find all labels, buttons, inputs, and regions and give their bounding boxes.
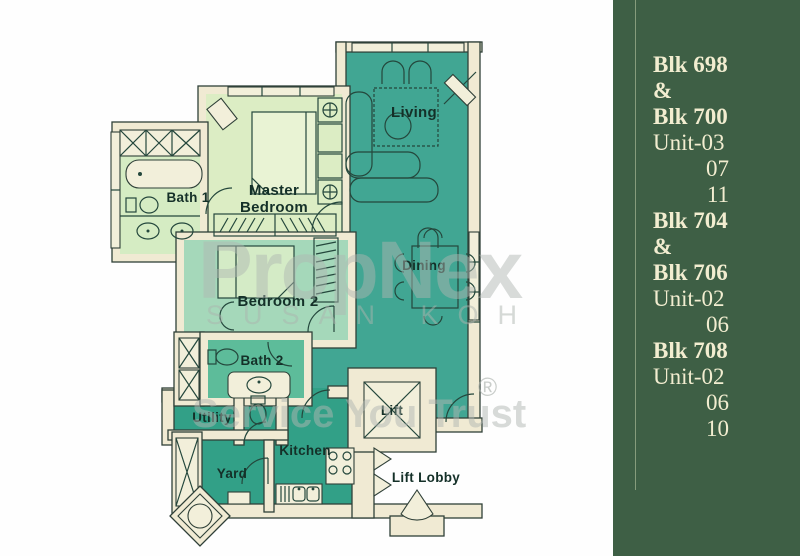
block-unit-list: Blk 698 & Blk 700 Unit-03 07 11 Blk 704 … bbox=[653, 52, 729, 442]
panel-line: 11 bbox=[653, 182, 729, 208]
panel-line: 07 bbox=[653, 156, 729, 182]
room-label-bath1: Bath 1 bbox=[166, 190, 209, 205]
scanned-floorplan-page: Living Master Bedroom Bath 1 Dining Bedr… bbox=[0, 0, 800, 556]
panel-line: Unit-02 bbox=[653, 286, 729, 312]
room-label-master-1: Master bbox=[249, 182, 299, 199]
bathtub-icon bbox=[126, 160, 202, 188]
panel-line: Unit-03 bbox=[653, 130, 729, 156]
panel-line: Unit-02 bbox=[653, 364, 729, 390]
panel-line: 06 bbox=[653, 390, 729, 416]
room-label-lift: Lift bbox=[381, 403, 403, 418]
room-label-yard: Yard bbox=[217, 466, 247, 481]
panel-line: Blk 704 bbox=[653, 208, 729, 234]
panel-line: & bbox=[653, 78, 729, 104]
panel-line: Blk 706 bbox=[653, 260, 729, 286]
bath1-ledge-icon bbox=[120, 130, 200, 156]
panel-line: Blk 700 bbox=[653, 104, 729, 130]
panel-line: Blk 698 bbox=[653, 52, 729, 78]
room-label-dining: Dining bbox=[402, 258, 446, 273]
lift-door-icon bbox=[374, 448, 391, 496]
yard-threshold bbox=[228, 492, 250, 504]
room-label-kitchen: Kitchen bbox=[279, 443, 331, 458]
panel-line: & bbox=[653, 234, 729, 260]
panel-line: 06 bbox=[653, 312, 729, 338]
room-label-bath2: Bath 2 bbox=[240, 353, 283, 368]
vanity-basin-icon bbox=[228, 372, 290, 398]
info-panel: Blk 698 & Blk 700 Unit-03 07 11 Blk 704 … bbox=[613, 0, 800, 556]
room-label-lift-lobby: Lift Lobby bbox=[392, 470, 460, 485]
panel-line: Blk 708 bbox=[653, 338, 729, 364]
room-label-master-2: Bedroom bbox=[240, 199, 308, 216]
room-label-living: Living bbox=[391, 104, 437, 121]
panel-divider-line bbox=[635, 0, 636, 490]
room-label-bedroom2: Bedroom 2 bbox=[237, 293, 318, 310]
room-label-utility: Utility bbox=[192, 410, 232, 425]
panel-line: 10 bbox=[653, 416, 729, 442]
sink-icon bbox=[276, 484, 322, 504]
